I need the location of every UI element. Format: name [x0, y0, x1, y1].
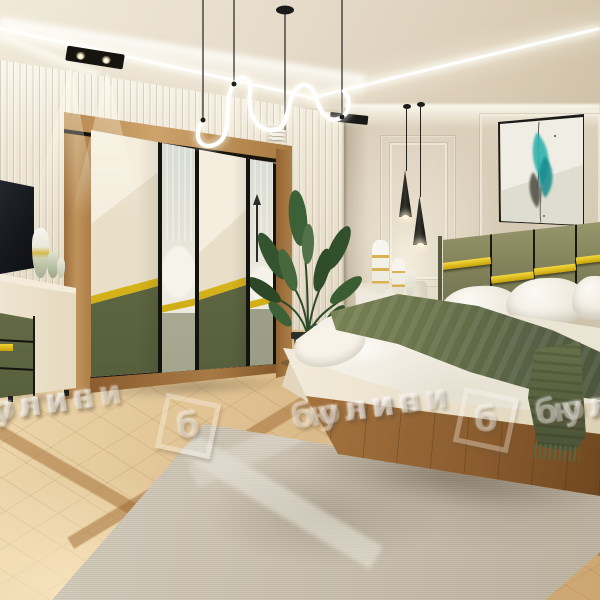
bedroom-render: юнис булини б юнис булини б юнис булини [0, 0, 600, 600]
wall-art-frame [494, 112, 588, 230]
pendant-mount [417, 102, 425, 107]
tv-screen [0, 180, 34, 274]
drawer-gold-handle [0, 344, 13, 351]
abstract-teal-art [497, 115, 585, 227]
mirror-frame-edge [195, 126, 197, 382]
headboard-side [438, 236, 442, 308]
headboard-gold-stripe [442, 257, 491, 270]
wardrobe-door-2 [199, 126, 246, 382]
small-vase [406, 270, 415, 296]
watermark-logo: б [453, 387, 519, 453]
door-shade [199, 126, 246, 382]
mirror-olive-reflection [160, 313, 197, 373]
spotlight-lens [76, 51, 86, 60]
watermark-logo-letter: б [473, 400, 498, 441]
neon-squiggle-pendant [150, 0, 370, 160]
watermark-logo-letter: б [175, 406, 200, 447]
pendant-cable [406, 107, 407, 171]
pendant-light-glow [402, 215, 409, 219]
gold-striped-vase [372, 240, 389, 294]
mirror-bed-reflection [162, 246, 195, 298]
wall-art-canvas [497, 115, 585, 227]
mirror-frame-edge [160, 126, 162, 382]
gold-striped-vase [392, 258, 405, 296]
headboard-gold-stripe [576, 254, 600, 264]
wardrobe-mirror-1 [160, 126, 197, 382]
throw-fringe [534, 443, 581, 461]
pendant-mount [403, 104, 411, 109]
pendant-cable [420, 105, 421, 197]
headboard-gold-stripe [534, 263, 577, 275]
watermark-logo: б [155, 393, 221, 459]
spotlight-lens [101, 55, 111, 64]
